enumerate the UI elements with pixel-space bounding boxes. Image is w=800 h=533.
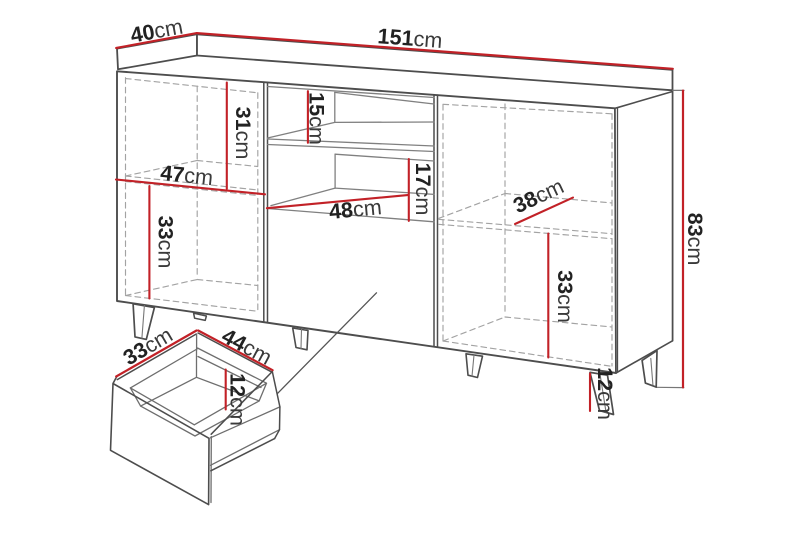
svg-text:151cm: 151cm bbox=[377, 23, 444, 53]
svg-text:31cm: 31cm bbox=[231, 107, 256, 160]
svg-text:12cm: 12cm bbox=[593, 367, 618, 420]
svg-text:33cm: 33cm bbox=[154, 216, 179, 269]
svg-text:17cm: 17cm bbox=[411, 163, 436, 216]
svg-text:48cm: 48cm bbox=[328, 194, 383, 224]
svg-text:15cm: 15cm bbox=[305, 92, 330, 145]
svg-text:12cm: 12cm bbox=[226, 373, 251, 426]
svg-text:33cm: 33cm bbox=[553, 270, 578, 323]
svg-text:83cm: 83cm bbox=[683, 213, 708, 266]
